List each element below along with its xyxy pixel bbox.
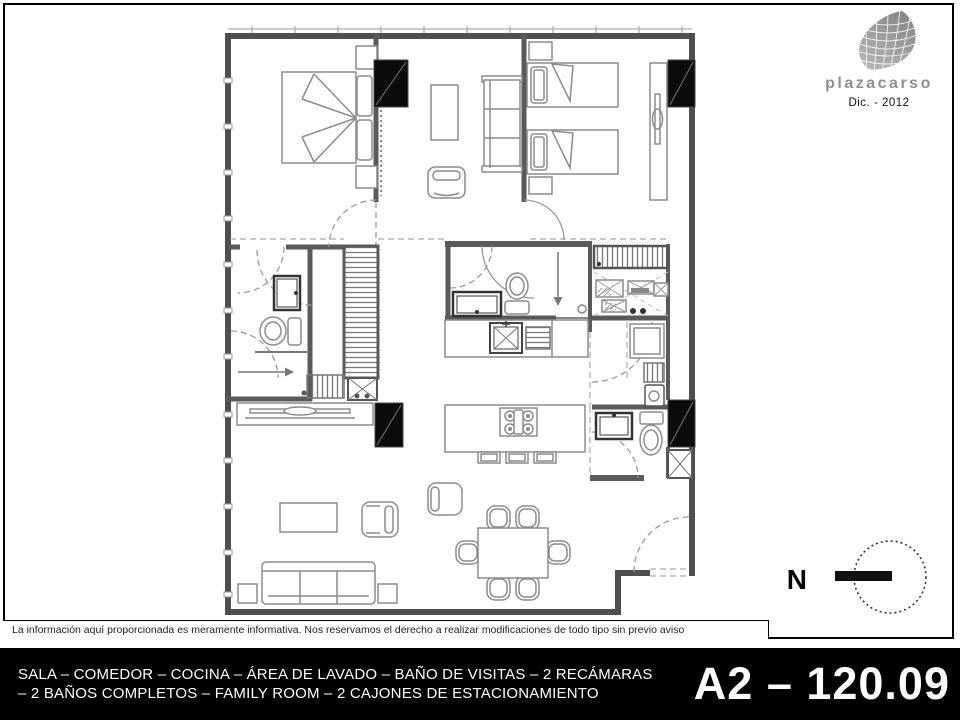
north-compass: N: [787, 541, 926, 613]
tv: [655, 94, 660, 144]
washbasin-small: [645, 385, 664, 406]
facade-window-ticks: [228, 26, 692, 33]
unit-features-summary: SALA – COMEDOR – COCINA – ÁREA DE LAVADO…: [0, 665, 694, 704]
closet-shelf: [307, 375, 344, 398]
compass-north-label: N: [787, 564, 807, 595]
double-bed: [282, 72, 356, 163]
second-bedroom: [527, 42, 667, 200]
kitchen: [445, 320, 588, 463]
dining-table: [478, 528, 548, 578]
coffee-table: [280, 503, 337, 532]
logo-wordmark: plazacarso: [804, 75, 954, 93]
master-bedroom: [282, 46, 377, 188]
dishwasher: [526, 327, 550, 349]
entry-door-arc: [634, 517, 689, 572]
footer-bar: SALA – COMEDOR – COCINA – ÁREA DE LAVADO…: [0, 648, 960, 720]
unit-code: A2 – 120.09: [694, 658, 960, 710]
side-table: [431, 85, 458, 140]
pillow: [357, 120, 372, 160]
towel-cabinet: [644, 363, 664, 382]
summary-line-1: SALA – COMEDOR – COCINA – ÁREA DE LAVADO…: [18, 665, 694, 685]
dining-area: [456, 506, 570, 600]
living-room: [237, 403, 462, 604]
soumaya-building-icon: [804, 10, 954, 72]
logo-date: Dic. - 2012: [804, 97, 954, 109]
nightstand: [529, 177, 552, 194]
service-shaft: [668, 450, 692, 478]
pillow: [357, 76, 372, 116]
guest-toilet-room: [596, 412, 663, 455]
disclaimer-bar: La información aquí proporcionada es mer…: [3, 620, 769, 639]
compass-needle: [835, 571, 892, 581]
nightstand: [356, 166, 377, 188]
summary-line-2: – 2 BAÑOS COMPLETOS – FAMILY ROOM – 2 CA…: [18, 684, 694, 704]
guest-bathroom: [453, 252, 586, 316]
laundry-closet: [594, 246, 668, 268]
second-bathroom: [630, 324, 664, 406]
sofa: [262, 562, 375, 604]
master-bathroom: [238, 276, 310, 396]
shelf-cap: [482, 166, 522, 172]
side-table: [378, 584, 397, 603]
toilet-tank: [640, 412, 663, 424]
wardrobe-closet: [307, 246, 378, 400]
side-table: [238, 584, 257, 603]
plaza-carso-logo: plazacarso Dic. - 2012: [804, 10, 954, 109]
disclaimer-text: La información aquí proporcionada es mer…: [12, 624, 684, 636]
laundry-area: [594, 246, 668, 316]
nightstand: [529, 42, 552, 60]
